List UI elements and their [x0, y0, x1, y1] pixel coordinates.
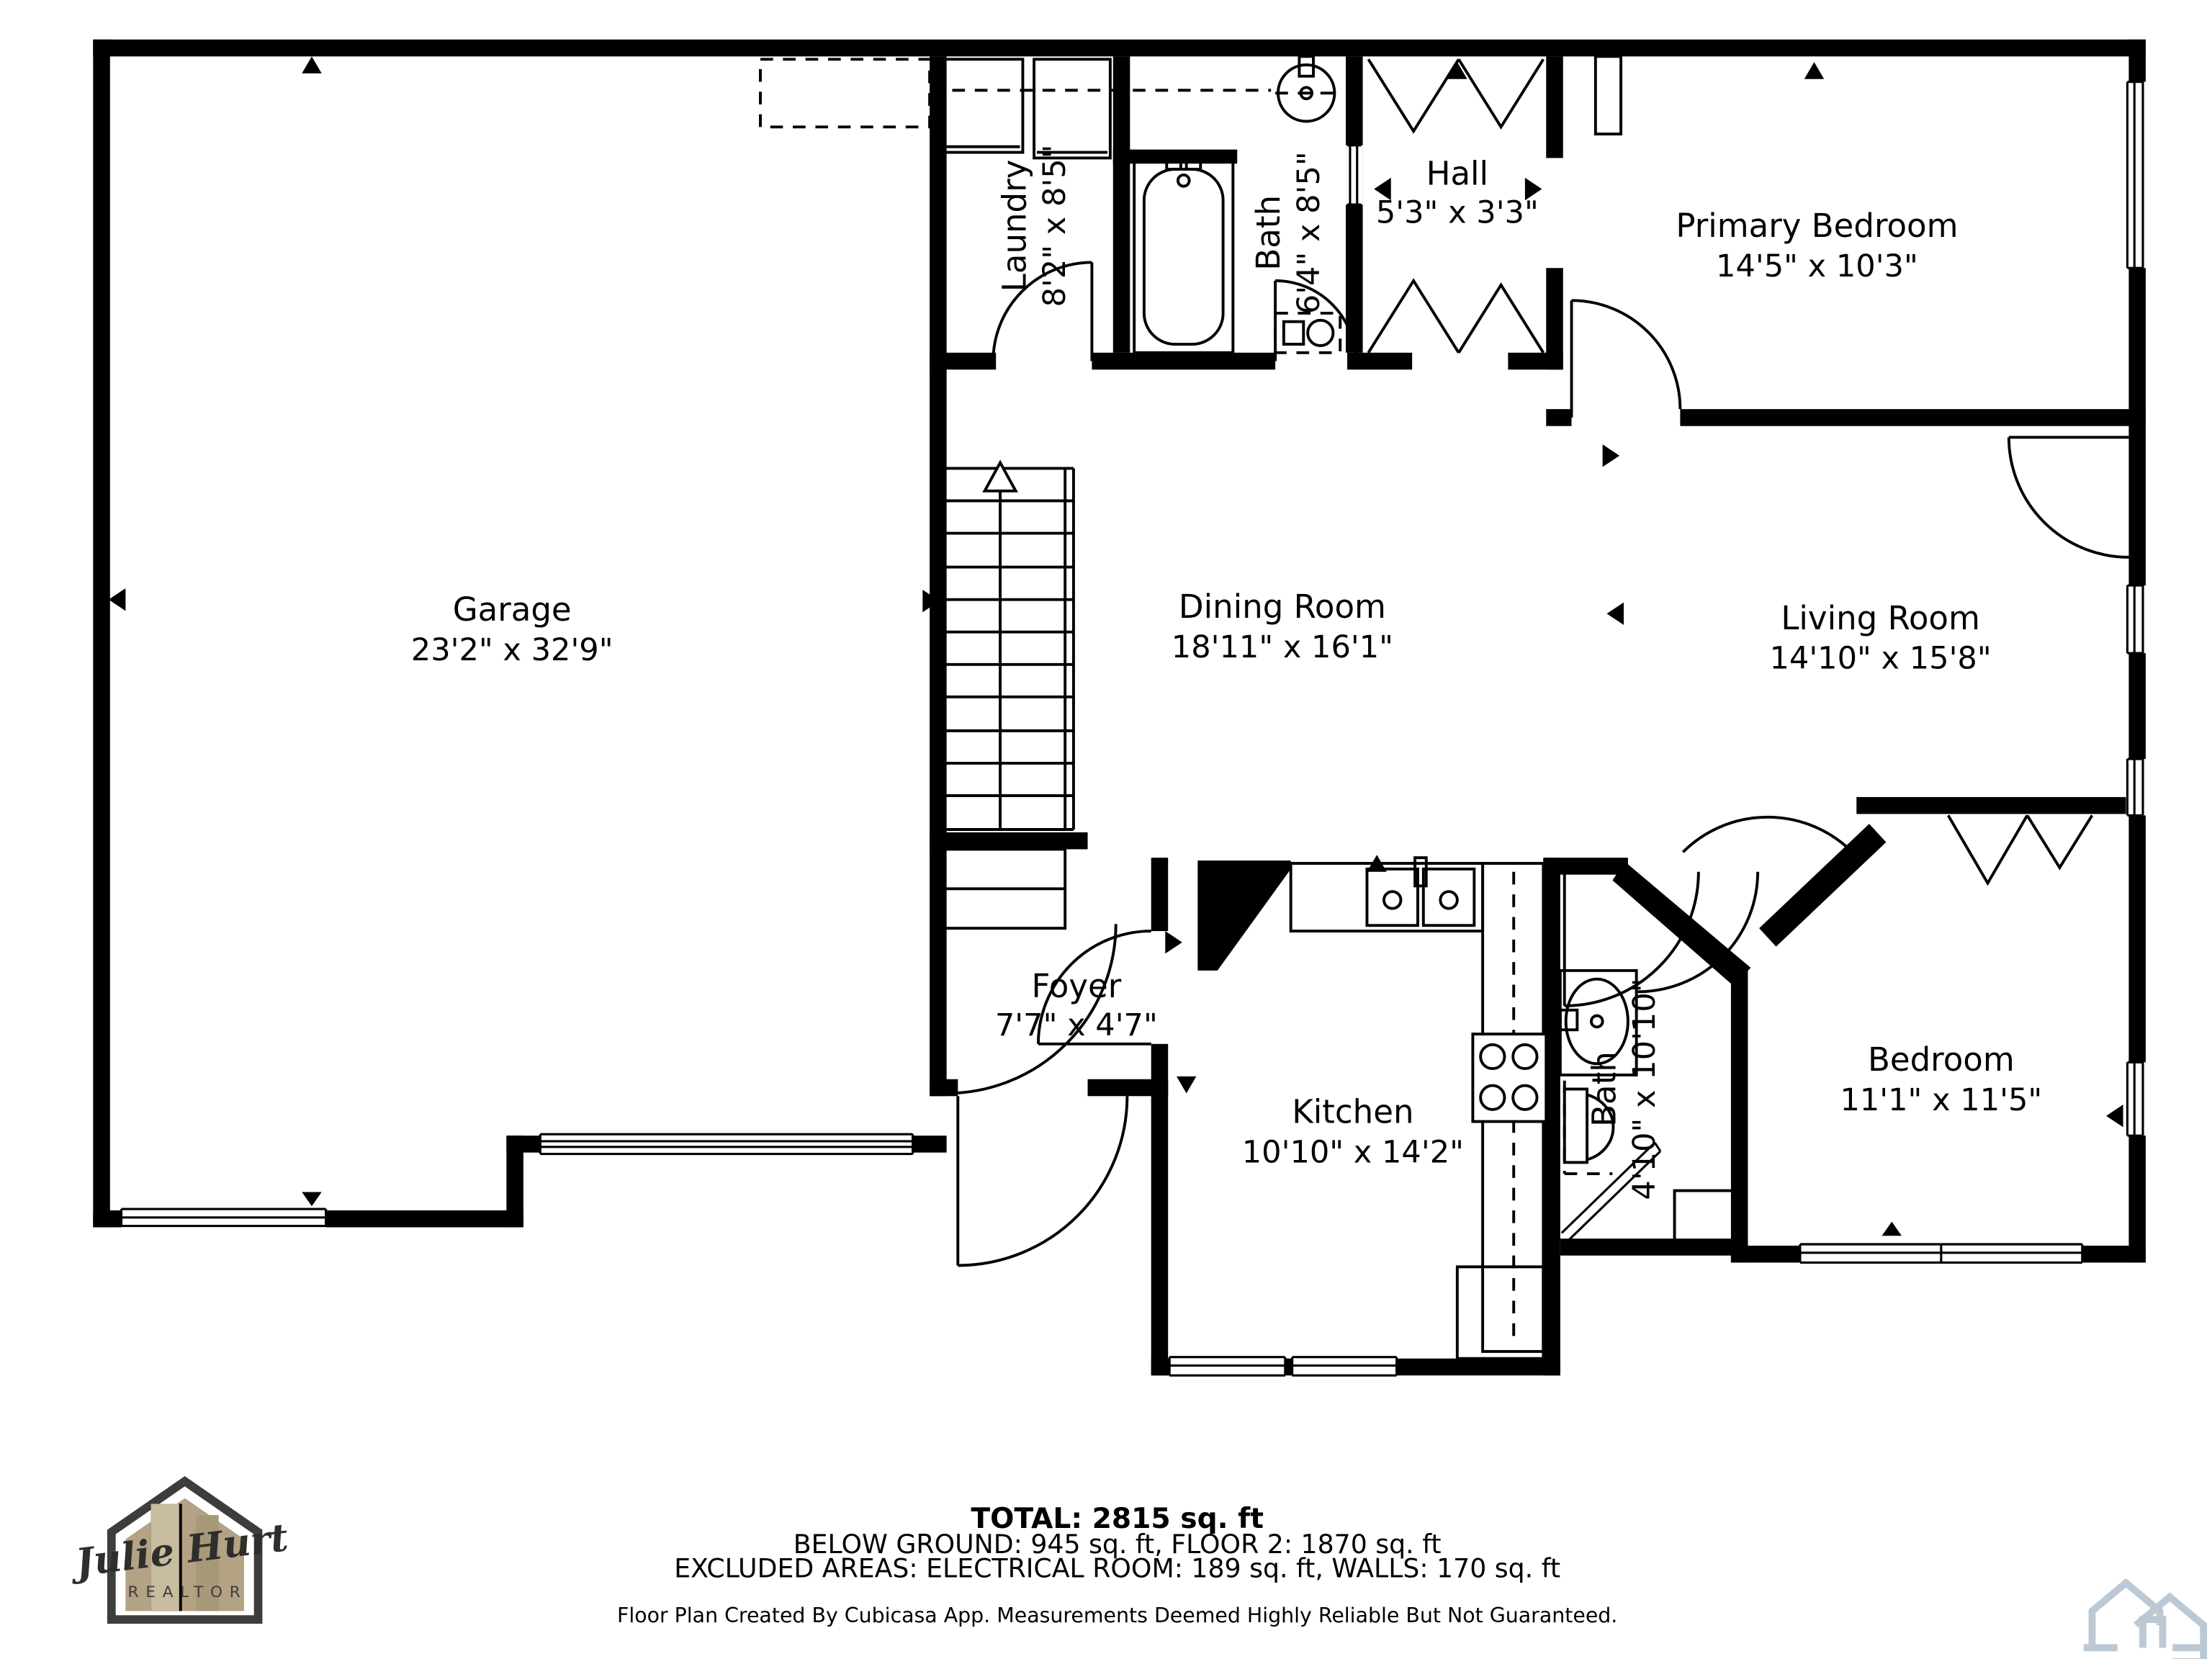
kitchen-window-icon: [1169, 1356, 1285, 1378]
room-label-hall: Hall: [1426, 155, 1489, 193]
footer-excluded: EXCLUDED AREAS: ELECTRICAL ROOM: 189 sq.…: [674, 1552, 1560, 1583]
room-dims-bath: 6'4" x 8'5": [1291, 151, 1327, 314]
room-dims-primary-bedroom: 14'5" x 10'3": [1716, 248, 1918, 284]
room-label-laundry: Laundry: [995, 160, 1033, 292]
room-dims-bedroom: 11'1" x 11'5": [1840, 1082, 2042, 1118]
room-dims-foyer: 7'7" x 4'7": [995, 1007, 1158, 1043]
room-label-bath2: Bath: [1585, 1051, 1623, 1127]
bath-hall-window-icon: [1346, 145, 1363, 204]
room-label-foyer: Foyer: [1031, 967, 1121, 1005]
tub-wall-jog: [1113, 150, 1237, 164]
room-dims-hall: 5'3" x 3'3": [1376, 195, 1539, 231]
garage-counter-dashed: [760, 59, 930, 127]
living-room-window2-icon: [2126, 759, 2148, 815]
arrow-icon: [1607, 603, 1624, 625]
footer: TOTAL: 2815 sq. ft BELOW GROUND: 945 sq.…: [617, 1503, 1617, 1627]
bath-sink-icon: [1275, 56, 1337, 121]
toilet-icon: [1275, 313, 1340, 353]
garage-long-window-icon: [540, 1133, 912, 1155]
hall-closet-bottom-icon: [1368, 281, 1543, 353]
garage-left-window-icon: [121, 1208, 325, 1230]
room-label-bath: Bath: [1249, 195, 1287, 271]
bedroom-side-window-icon: [2126, 1062, 2148, 1136]
kitchen-corner-cabinet-icon: [1197, 860, 1290, 971]
room-label-living-room: Living Room: [1781, 599, 1980, 637]
primary-wall-return: [1596, 56, 1621, 134]
bedroom-door-icon: [1683, 817, 1852, 937]
room-label-primary-bedroom: Primary Bedroom: [1676, 207, 1958, 245]
room-dims-garage: 23'2" x 32'9": [411, 632, 613, 668]
kitchen-cabinet: [1457, 1267, 1544, 1358]
room-dims-bath2: 4'10" x 10'10": [1627, 978, 1663, 1200]
arrow-icon: [109, 588, 126, 611]
room-label-kitchen: Kitchen: [1292, 1093, 1413, 1131]
logo-subtitle: REALTOR: [128, 1583, 248, 1601]
staircase: [935, 463, 1074, 929]
footer-disclaimer: Floor Plan Created By Cubicasa App. Meas…: [617, 1604, 1617, 1627]
entry-door-icon: [958, 1096, 1127, 1265]
arrow-icon: [302, 56, 321, 73]
bedroom-closet-icon: [1948, 815, 2092, 883]
bedroom-bottom-window-icon: [1800, 1243, 2082, 1265]
primary-bedroom-window-icon: [2126, 82, 2148, 269]
arrow-icon: [2106, 1105, 2123, 1127]
living-room-window-icon: [2126, 585, 2148, 653]
kitchen-counter-icon: [1291, 863, 1483, 931]
living-room-door-icon: [2009, 437, 2129, 557]
room-label-garage: Garage: [453, 590, 572, 629]
washer-icon: [944, 59, 1023, 152]
realtor-logo: Julie Hurt REALTOR: [67, 1481, 291, 1619]
room-label-dining-room: Dining Room: [1179, 588, 1386, 626]
arrow-icon: [1165, 931, 1182, 953]
room-label-bedroom: Bedroom: [1868, 1040, 2015, 1079]
arrow-icon: [1603, 444, 1620, 467]
cubicasa-watermark-icon: [2084, 1583, 2204, 1659]
room-dims-laundry: 8'2" x 8'5": [1037, 145, 1073, 307]
floor-plan-page: Garage 23'2" x 32'9" Laundry 8'2" x 8'5"…: [0, 0, 2212, 1659]
kitchen-window2-icon: [1292, 1356, 1397, 1378]
dryer-icon: [1034, 59, 1110, 158]
room-dims-dining-room: 18'11" x 16'1": [1172, 629, 1393, 665]
arrow-icon: [1177, 1076, 1196, 1094]
stove-icon: [1473, 1034, 1546, 1121]
bathtub-icon: [1134, 158, 1233, 352]
room-dims-kitchen: 10'10" x 14'2": [1242, 1134, 1464, 1170]
room-dims-living-room: 14'10" x 15'8": [1770, 641, 1992, 677]
primary-bedroom-door-icon: [1572, 300, 1681, 418]
arrow-icon: [1804, 62, 1824, 79]
arrow-icon: [1882, 1222, 1902, 1236]
arrow-icon: [302, 1192, 321, 1207]
floor-plan-drawing: Garage 23'2" x 32'9" Laundry 8'2" x 8'5"…: [0, 0, 2212, 1659]
